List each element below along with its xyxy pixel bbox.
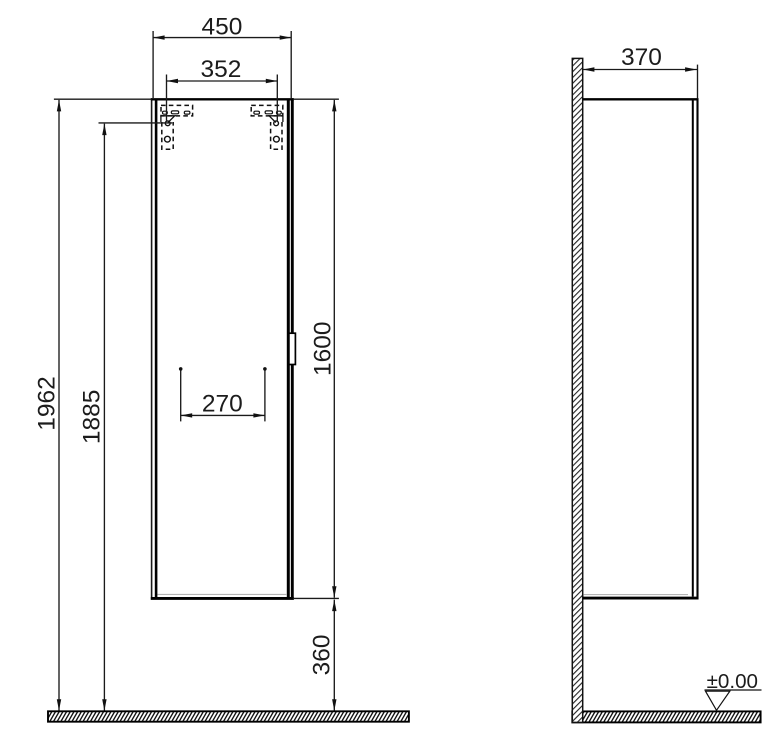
svg-text:270: 270: [202, 390, 243, 417]
svg-text:1885: 1885: [79, 390, 106, 445]
svg-text:±0.00: ±0.00: [707, 670, 758, 693]
svg-text:360: 360: [309, 634, 336, 675]
svg-text:370: 370: [621, 44, 662, 71]
svg-text:450: 450: [202, 13, 243, 40]
svg-text:1962: 1962: [33, 376, 60, 431]
svg-text:352: 352: [201, 56, 242, 83]
svg-text:1600: 1600: [309, 322, 336, 377]
